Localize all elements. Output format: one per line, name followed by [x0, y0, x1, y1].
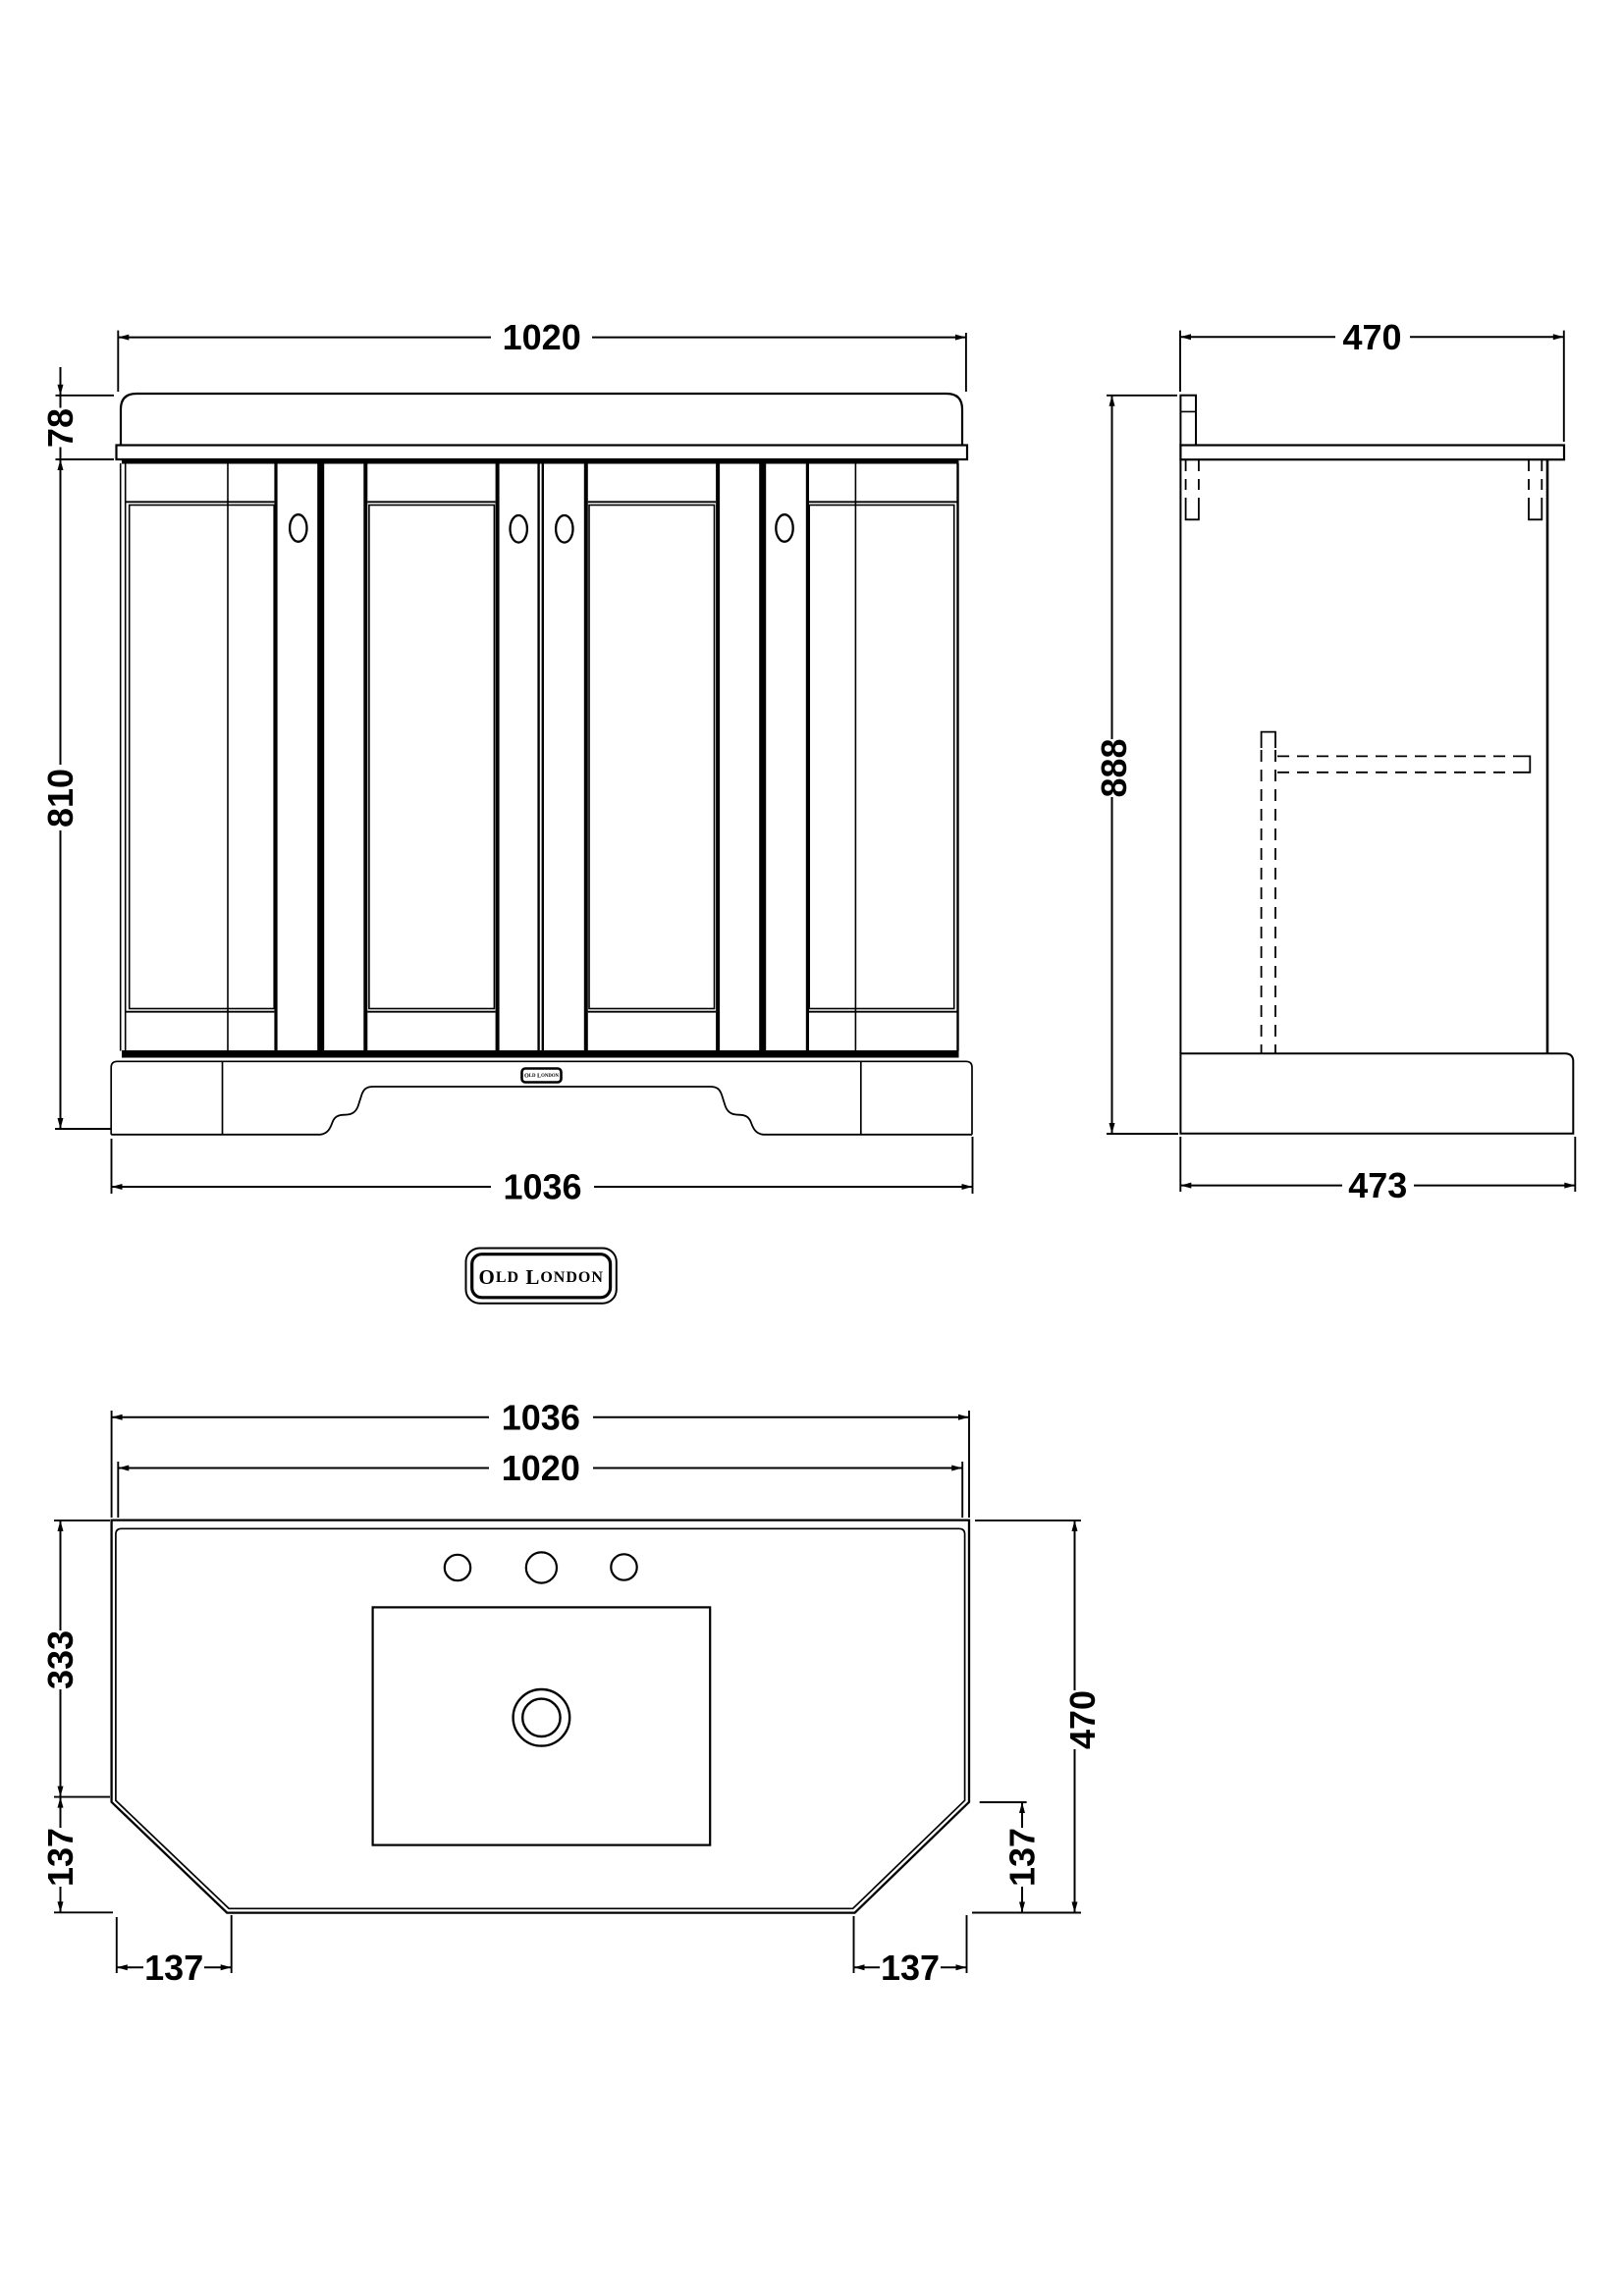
svg-text:1020: 1020 — [502, 1448, 580, 1488]
svg-text:137: 137 — [1002, 1828, 1043, 1887]
svg-text:1036: 1036 — [503, 1167, 581, 1207]
svg-text:470: 470 — [1062, 1690, 1103, 1749]
svg-text:137: 137 — [40, 1828, 81, 1887]
svg-text:810: 810 — [40, 769, 81, 828]
svg-text:888: 888 — [1094, 738, 1134, 797]
svg-text:78: 78 — [40, 408, 81, 448]
svg-text:1036: 1036 — [502, 1397, 580, 1437]
svg-text:137: 137 — [144, 1948, 203, 1988]
svg-text:473: 473 — [1348, 1165, 1407, 1205]
svg-text:333: 333 — [40, 1630, 81, 1689]
svg-text:OLD LONDON: OLD LONDON — [478, 1265, 603, 1289]
svg-text:137: 137 — [881, 1948, 940, 1988]
svg-text:470: 470 — [1342, 317, 1401, 357]
svg-text:OLD LONDON: OLD LONDON — [524, 1072, 560, 1079]
svg-text:1020: 1020 — [503, 317, 581, 357]
